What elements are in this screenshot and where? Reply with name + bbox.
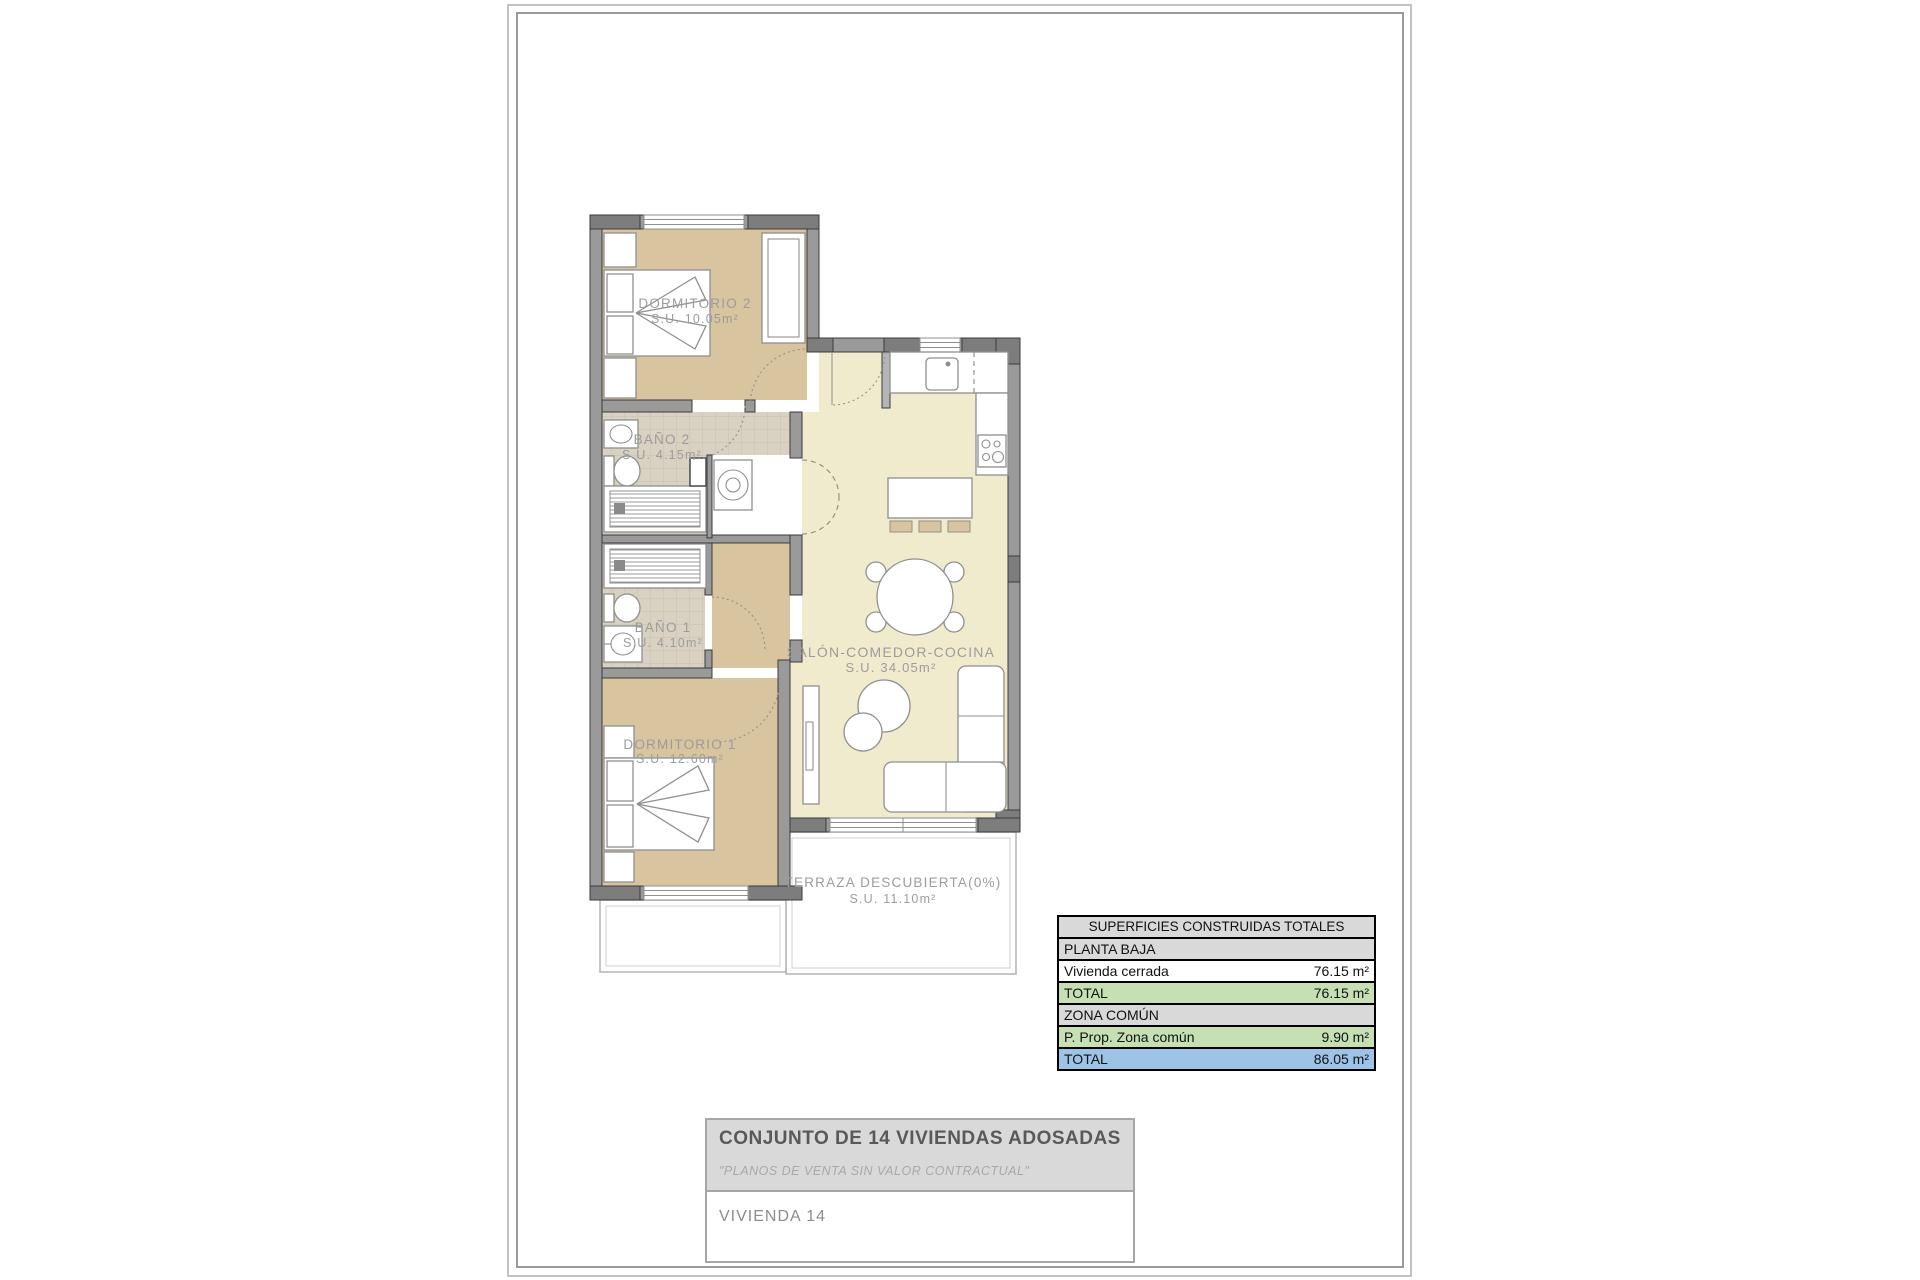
tv-unit-icon xyxy=(803,686,819,804)
window-kitchen xyxy=(920,338,960,352)
title-block: CONJUNTO DE 14 VIVIENDAS ADOSADAS "PLANO… xyxy=(705,1118,1135,1263)
title-block-body: VIVIENDA 14 xyxy=(707,1192,1133,1242)
bano1-area: S.U. 4.10m² xyxy=(623,636,703,650)
salon-area: S.U. 34.05m² xyxy=(846,660,937,675)
dormitorio2-label: DORMITORIO 2 xyxy=(638,296,751,311)
floorplan-drawing: DORMITORIO 2 S.U. 10.05m² BAÑO 2 S.U. 4.… xyxy=(0,0,1920,1280)
table-row: PLANTA BAJA xyxy=(1059,937,1374,959)
terraza-area: S.U. 11.10m² xyxy=(849,892,936,906)
window-dormitorio2 xyxy=(644,215,744,229)
table-row: Vivienda cerrada 76.15 m² xyxy=(1059,959,1374,981)
table-row: TOTAL 76.15 m² xyxy=(1059,981,1374,1003)
toilet-icon-bano1 xyxy=(604,594,640,622)
project-title: CONJUNTO DE 14 VIVIENDAS ADOSADAS xyxy=(719,1128,1121,1150)
hall-floor xyxy=(712,543,790,668)
kitchen-sink-icon xyxy=(946,362,951,367)
surface-table-title: SUPERFICIES CONSTRUIDAS TOTALES xyxy=(1059,917,1374,937)
terrace-side-area xyxy=(600,900,786,972)
dormitorio1-label: DORMITORIO 1 xyxy=(623,737,736,752)
table-row: TOTAL 86.05 m² xyxy=(1059,1047,1374,1069)
unit-name: VIVIENDA 14 xyxy=(719,1208,1121,1226)
bano2-area: S.U. 4.15m² xyxy=(622,448,702,462)
surface-table: SUPERFICIES CONSTRUIDAS TOTALES PLANTA B… xyxy=(1057,915,1376,1071)
terraza-label: TERRAZA DESCUBIERTA(0%) xyxy=(785,875,1002,890)
table-row: ZONA COMÚN xyxy=(1059,1003,1374,1025)
dormitorio1-area: S.U. 12.60m² xyxy=(636,752,724,766)
breakfast-bar xyxy=(888,478,972,532)
salon-label: SALÓN-COMEDOR-COCINA xyxy=(787,644,995,660)
dormitorio2-area: S.U. 10.05m² xyxy=(651,312,739,326)
bano2-label: BAÑO 2 xyxy=(634,432,691,447)
closet-icon-dormitorio2 xyxy=(762,233,805,343)
shower-icon-bano2 xyxy=(604,486,706,532)
title-block-header: CONJUNTO DE 14 VIVIENDAS ADOSADAS "PLANO… xyxy=(707,1120,1133,1192)
window-dormitorio1 xyxy=(644,886,748,900)
table-row: P. Prop. Zona común 9.90 m² xyxy=(1059,1025,1374,1047)
shower-icon-bano1 xyxy=(604,544,706,588)
disclaimer-text: "PLANOS DE VENTA SIN VALOR CONTRACTUAL" xyxy=(719,1164,1121,1178)
floorplan-sheet: DORMITORIO 2 S.U. 10.05m² BAÑO 2 S.U. 4.… xyxy=(0,0,1920,1280)
bano1-label: BAÑO 1 xyxy=(635,620,692,635)
dining-table-icon xyxy=(866,559,964,635)
stove-icon xyxy=(978,435,1006,467)
sliding-door-salon xyxy=(830,818,976,832)
